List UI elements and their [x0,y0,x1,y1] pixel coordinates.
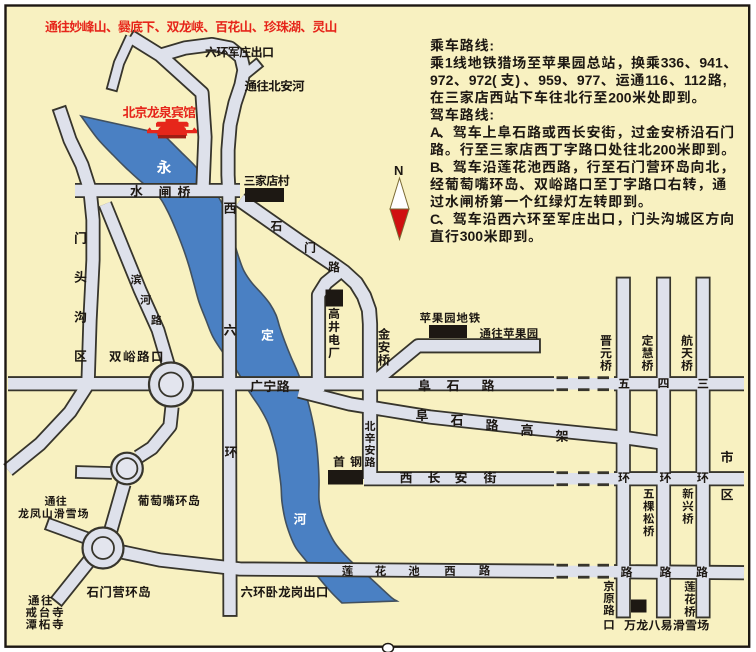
svg-text:941: 941 [699,55,723,71]
svg-text:): ) [515,72,520,88]
svg-text:977: 977 [577,72,601,88]
svg-text::: : [489,37,494,53]
svg-text:200: 200 [653,141,677,157]
svg-text:972(: 972( [469,72,497,88]
svg-text:,: , [723,72,727,88]
svg-text:336: 336 [661,55,685,71]
svg-text:C: C [430,211,440,227]
svg-text:972: 972 [430,72,454,88]
svg-text::: : [489,107,494,123]
svg-text:A: A [430,124,440,140]
svg-text:1: 1 [445,55,453,71]
svg-text:300: 300 [460,228,484,244]
svg-text:116: 116 [645,72,668,88]
svg-text:200: 200 [608,89,632,105]
svg-text:959: 959 [538,72,562,88]
svg-text:112: 112 [684,72,707,88]
svg-text:B: B [430,159,440,175]
svg-text:N: N [394,163,403,178]
